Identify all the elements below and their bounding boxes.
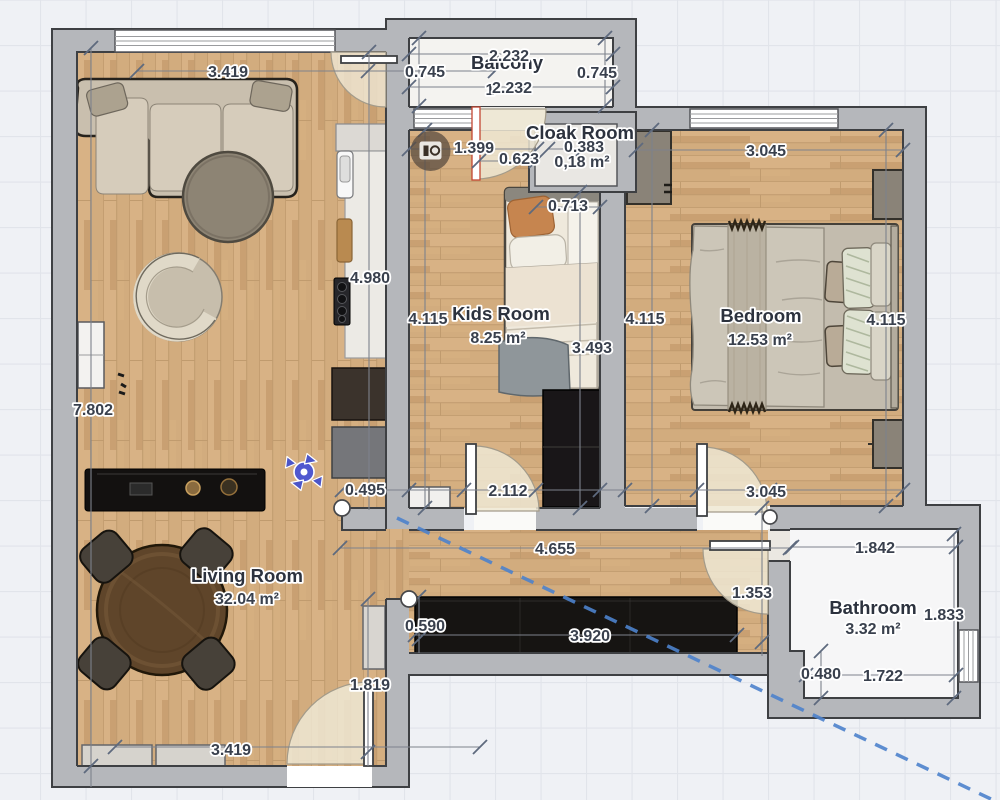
svg-text:1.399: 1.399 — [454, 140, 494, 157]
svg-text:3.32 m²: 3.32 m² — [845, 621, 900, 638]
svg-text:0.480: 0.480 — [801, 666, 841, 683]
svg-text:1.819: 1.819 — [350, 677, 390, 694]
svg-text:Bedroom: Bedroom — [720, 305, 801, 326]
svg-text:Bathroom: Bathroom — [829, 597, 916, 618]
svg-text:3.419: 3.419 — [208, 64, 248, 81]
svg-text:0.623: 0.623 — [499, 151, 539, 168]
svg-text:12.53 m²: 12.53 m² — [728, 332, 792, 349]
svg-text:4.115: 4.115 — [866, 312, 905, 329]
svg-text:3.920: 3.920 — [570, 628, 610, 645]
svg-text:0.495: 0.495 — [345, 482, 385, 499]
svg-text:1.722: 1.722 — [863, 668, 903, 685]
svg-text:1.842: 1.842 — [855, 540, 895, 557]
svg-text:3.045: 3.045 — [746, 143, 786, 160]
svg-text:0.383: 0.383 — [564, 139, 604, 156]
svg-text:0.713: 0.713 — [548, 198, 588, 215]
svg-text:4.115: 4.115 — [408, 311, 447, 328]
svg-text:3.419: 3.419 — [211, 742, 251, 759]
svg-text:0.745: 0.745 — [577, 65, 617, 82]
svg-text:4.655: 4.655 — [535, 541, 575, 558]
svg-text:1.353: 1.353 — [732, 585, 772, 602]
svg-text:2.232: 2.232 — [492, 80, 532, 97]
svg-text:0.745: 0.745 — [405, 64, 445, 81]
svg-text:7.802: 7.802 — [73, 402, 113, 419]
svg-text:4.980: 4.980 — [350, 270, 390, 287]
svg-text:1.833: 1.833 — [924, 607, 964, 624]
svg-text:4.115: 4.115 — [625, 311, 664, 328]
svg-text:0.590: 0.590 — [405, 618, 445, 635]
svg-text:Kids Room: Kids Room — [452, 303, 550, 324]
svg-text:3.493: 3.493 — [572, 340, 612, 357]
svg-text:8.25 m²: 8.25 m² — [470, 330, 525, 347]
svg-text:2.112: 2.112 — [488, 483, 527, 500]
svg-text:0,18 m²: 0,18 m² — [554, 154, 609, 171]
svg-text:Living Room: Living Room — [191, 565, 303, 586]
svg-text:3.045: 3.045 — [746, 484, 786, 501]
svg-text:32.04 m²: 32.04 m² — [215, 591, 279, 608]
svg-text:2.232: 2.232 — [489, 48, 529, 65]
